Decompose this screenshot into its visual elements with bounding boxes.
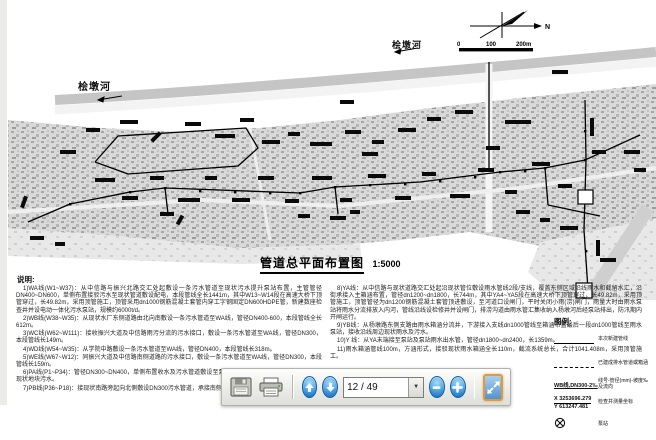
scale-bar: 0 100 200m [457, 42, 533, 51]
viewer-toolbar: ▼ [221, 368, 511, 406]
zoom-out-button[interactable] [429, 376, 445, 398]
line-code-symbol: WB线,DN300-2‰ [554, 381, 598, 389]
north-arrow-icon: N [470, 10, 550, 38]
coordinate-y: Y 613247.481 [554, 404, 588, 410]
note-4: 4)WD线(W54~W35)：从学院中路敷设一条污水管道至WA线，管径DN400… [16, 347, 322, 354]
north-label: N [545, 24, 550, 31]
pump-station-symbol [554, 417, 566, 429]
river-label: 桧墩河 [78, 78, 111, 93]
drawing-title: 管道总平面布置图 1:5000 [260, 254, 401, 274]
scale-mid: 100 [486, 42, 497, 48]
plus-icon [452, 382, 463, 393]
scale-zero: 0 [457, 42, 461, 48]
previous-page-button[interactable] [302, 376, 318, 398]
page-number-combo[interactable]: ▼ [343, 377, 424, 398]
legend-label: 已建成排水管道或箱涵 [598, 361, 648, 367]
river-label-2: 桧墩河 [392, 38, 422, 51]
legend-row-pump-station: 泵站 [554, 416, 654, 434]
legend-label: 本次新建管线 [598, 337, 628, 343]
legend-row-new-pipeline: 本次新建管线 [554, 331, 654, 349]
note-2: 2)WB线(W38~W35)：从现状水厂东侧道路由北向南敷设一条污水管道至WA线… [16, 316, 322, 330]
note-3: 3)WC线(W62~W111)：接收振兴大道及中信路雨污分流的污水接口，敷设一条… [16, 331, 322, 345]
notes-heading: 说明: [17, 274, 35, 285]
legend-row-existing-pipeline: 已建成排水管道或箱涵 [554, 355, 654, 373]
legend: 图例: 本次新建管线 已建成排水管道或箱涵 WB线,DN300-2‰ 线号-管径… [554, 316, 654, 440]
print-button[interactable] [258, 373, 284, 401]
legend-label: 线号-管径(mm)-坡度‰ 及流向 [598, 379, 654, 390]
coordinate-x: X 3253696.279 [554, 396, 591, 404]
legend-label: 泵站 [598, 422, 608, 428]
page-number-input[interactable] [344, 378, 408, 397]
legend-row-line-code: WB线,DN300-2‰ 线号-管径(mm)-坡度‰ 及流向 [554, 379, 654, 390]
solid-line-symbol [554, 343, 594, 344]
zoom-in-button[interactable] [450, 376, 466, 398]
drawing-title-text: 管道总平面布置图 [260, 254, 364, 274]
drawing-scale: 1:5000 [372, 259, 400, 269]
legend-heading: 图例: [554, 316, 654, 327]
note-1: 1)WA线(W1~W37)：从中信路与振兴北路交汇处起敷设一条污水管道至现状污水… [16, 286, 322, 315]
printer-icon [259, 377, 283, 397]
save-button[interactable] [229, 373, 253, 401]
scale-end: 200m [516, 42, 531, 48]
chevron-down-icon: ▼ [413, 384, 419, 390]
legend-row-coordinates: X 3253696.279 Y 613247.481 检查井测量坐标 [554, 396, 654, 410]
arrow-down-icon [325, 382, 336, 393]
arrow-up-icon [304, 382, 315, 393]
dashed-line-symbol [554, 367, 594, 368]
fit-to-window-button[interactable] [483, 374, 503, 401]
next-page-button[interactable] [322, 376, 338, 398]
fit-arrows-icon [486, 380, 501, 395]
page-dropdown-button[interactable]: ▼ [408, 378, 423, 397]
toolbar-separator [474, 375, 476, 399]
outfall-chamber [578, 190, 593, 204]
toolbar-separator [292, 375, 294, 399]
minus-icon [431, 382, 442, 393]
coordinate-symbol: X 3253696.279 Y 613247.481 [554, 396, 598, 410]
save-icon [230, 377, 252, 397]
